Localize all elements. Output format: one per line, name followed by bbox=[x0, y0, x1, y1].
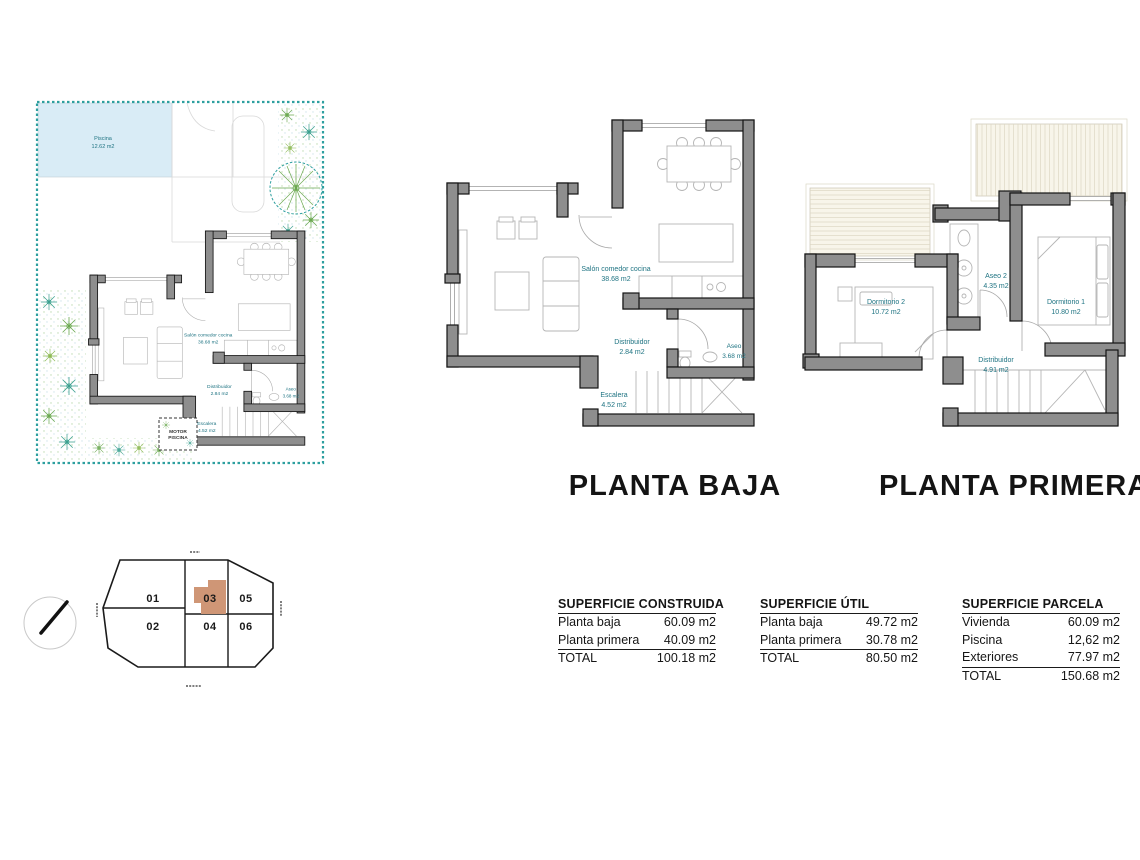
row-value: 77.97 m2 bbox=[1068, 649, 1120, 667]
unit-01: 01 bbox=[146, 593, 159, 605]
site-plan-drawing: MOTOR PISCINA Piscina 12.62 m2 bbox=[35, 100, 325, 465]
table-title: SUPERFICIE CONSTRUIDA bbox=[558, 597, 716, 614]
bed-dormitorio2 bbox=[838, 287, 933, 359]
row-label: Planta baja bbox=[558, 614, 621, 632]
pool-label: Piscina bbox=[94, 136, 113, 142]
room-label-escalera: Escalera bbox=[600, 392, 627, 399]
row-label: Piscina bbox=[962, 632, 1002, 650]
table-total-row: TOTAL 100.18 m2 bbox=[558, 649, 716, 668]
room-area-distribuidor-p1: 4.91 m2 bbox=[983, 367, 1008, 374]
unit-02: 02 bbox=[146, 621, 159, 633]
coffee-table bbox=[495, 272, 529, 310]
planta-primera-drawing: Dormitorio 2 10.72 m2 Aseo 2 4.35 m2 Dor… bbox=[800, 112, 1130, 442]
vegetation-right bbox=[270, 103, 322, 242]
table-total-row: TOTAL 150.68 m2 bbox=[962, 667, 1120, 686]
total-value: 100.18 m2 bbox=[657, 650, 716, 668]
armchairs bbox=[497, 217, 537, 239]
row-value: 49.72 m2 bbox=[866, 614, 918, 632]
planta-primera-plan-group: Dormitorio 2 10.72 m2 Aseo 2 4.35 m2 Dor… bbox=[803, 119, 1127, 426]
table-row: Vivienda 60.09 m2 bbox=[962, 614, 1120, 632]
door-arcs-upper bbox=[919, 290, 1052, 358]
room-label-distribuidor: Distribuidor bbox=[614, 339, 650, 346]
table-superficie-construida: SUPERFICIE CONSTRUIDA Planta baja 60.09 … bbox=[558, 597, 716, 668]
floor-plan-sheet: { "site_plan": { "pool": {"name": "Pisci… bbox=[0, 0, 1140, 860]
dining-set bbox=[658, 138, 741, 191]
row-label: Planta primera bbox=[558, 632, 639, 650]
site-house-footprint bbox=[89, 231, 305, 445]
total-label: TOTAL bbox=[558, 650, 597, 668]
pool-area-label: 12.62 m2 bbox=[92, 144, 115, 150]
room-area-escalera: 4.52 m2 bbox=[601, 402, 626, 409]
table-row: Planta primera 40.09 m2 bbox=[558, 632, 716, 650]
total-value: 150.68 m2 bbox=[1061, 668, 1120, 686]
row-label: Planta baja bbox=[760, 614, 823, 632]
row-label: Exteriores bbox=[962, 649, 1018, 667]
motor-label-line2: PISCINA bbox=[168, 435, 188, 441]
table-total-row: TOTAL 80.50 m2 bbox=[760, 649, 918, 668]
room-label-distribuidor-p1: Distribuidor bbox=[978, 357, 1014, 364]
sofa bbox=[543, 257, 579, 331]
table-title: SUPERFICIE ÚTIL bbox=[760, 597, 918, 614]
row-label: Planta primera bbox=[760, 632, 841, 650]
table-row: Planta baja 49.72 m2 bbox=[760, 614, 918, 632]
row-value: 60.09 m2 bbox=[664, 614, 716, 632]
car-outline bbox=[232, 116, 264, 212]
unit-03: 03 bbox=[203, 593, 216, 605]
table-row: Piscina 12,62 m2 bbox=[962, 632, 1120, 650]
room-area-aseo2: 4.35 m2 bbox=[983, 283, 1008, 290]
plot-outline bbox=[103, 560, 273, 667]
row-value: 12,62 m2 bbox=[1068, 632, 1120, 650]
room-label-dormitorio1: Dormitorio 1 bbox=[1047, 299, 1085, 306]
motor-label-line1: MOTOR bbox=[169, 429, 187, 435]
pool-motor-box: MOTOR PISCINA bbox=[159, 418, 197, 450]
room-label-aseo2: Aseo 2 bbox=[985, 273, 1007, 280]
planta-baja-plan-group: Salón comedor cocina 38.68 m2 Distribuid… bbox=[445, 120, 754, 426]
stairs-upper bbox=[963, 370, 1106, 413]
total-label: TOTAL bbox=[962, 668, 1001, 686]
unit-05: 05 bbox=[239, 593, 252, 605]
room-label-dormitorio2: Dormitorio 2 bbox=[867, 299, 905, 306]
room-area-dormitorio2: 10.72 m2 bbox=[871, 309, 900, 316]
row-value: 40.09 m2 bbox=[664, 632, 716, 650]
aseo-fixtures bbox=[679, 351, 717, 369]
room-label-aseo: Aseo bbox=[727, 343, 742, 350]
table-title: SUPERFICIE PARCELA bbox=[962, 597, 1120, 614]
planta-baja-drawing: Salón comedor cocina 38.68 m2 Distribuid… bbox=[440, 110, 760, 440]
total-value: 80.50 m2 bbox=[866, 650, 918, 668]
table-superficie-parcela: SUPERFICIE PARCELA Vivienda 60.09 m2 Pis… bbox=[962, 597, 1120, 685]
table-row: Exteriores 77.97 m2 bbox=[962, 649, 1120, 667]
total-label: TOTAL bbox=[760, 650, 799, 668]
kitchen-counter bbox=[639, 276, 743, 298]
table-row: Planta baja 60.09 m2 bbox=[558, 614, 716, 632]
planta-baja-title: PLANTA BAJA bbox=[559, 470, 791, 503]
kitchen-island bbox=[659, 224, 733, 262]
table-superficie-util: SUPERFICIE ÚTIL Planta baja 49.72 m2 Pla… bbox=[760, 597, 918, 668]
table-row: Planta primera 30.78 m2 bbox=[760, 632, 918, 650]
dining-table bbox=[667, 146, 731, 182]
row-value: 30.78 m2 bbox=[866, 632, 918, 650]
room-area-dormitorio1: 10.80 m2 bbox=[1051, 309, 1080, 316]
room-area-aseo: 3.68 m2 bbox=[722, 353, 746, 360]
unit-04: 04 bbox=[203, 621, 217, 633]
room-label-salon: Salón comedor cocina bbox=[581, 266, 650, 273]
room-area-salon: 38.68 m2 bbox=[601, 276, 630, 283]
room-area-distribuidor: 2.84 m2 bbox=[619, 349, 644, 356]
row-label: Vivienda bbox=[962, 614, 1010, 632]
north-arrow-icon bbox=[24, 597, 76, 649]
unit-06: 06 bbox=[239, 621, 252, 633]
key-plan-drawing: 01 02 03 04 05 06 bbox=[10, 545, 310, 695]
planta-primera-title: PLANTA PRIMERA bbox=[879, 470, 1140, 503]
row-value: 60.09 m2 bbox=[1068, 614, 1120, 632]
